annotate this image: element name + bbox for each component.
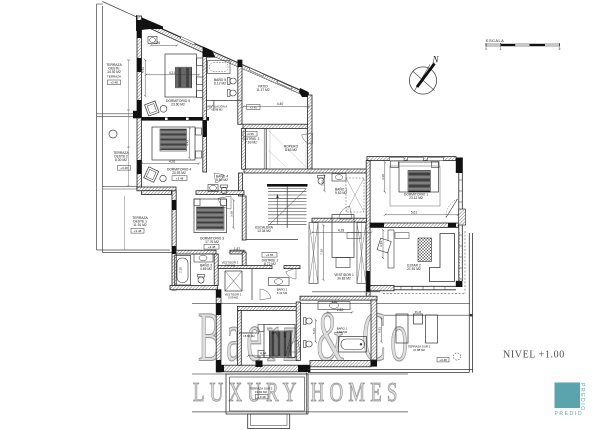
svg-text:6.12 M2: 6.12 M2	[214, 82, 226, 86]
svg-text:+3.48: +3.48	[110, 81, 118, 85]
svg-text:14.92 M2: 14.92 M2	[107, 70, 121, 74]
svg-text:+3.48: +3.48	[258, 395, 266, 399]
svg-text:+3.48: +3.48	[176, 176, 184, 180]
svg-text:ESCALA: ESCALA	[486, 38, 504, 43]
svg-text:1.87: 1.87	[234, 247, 240, 251]
svg-text:3.09 M2: 3.09 M2	[228, 296, 239, 300]
svg-text:23.12 M2: 23.12 M2	[409, 196, 423, 200]
svg-text:47.88 M2: 47.88 M2	[413, 348, 425, 352]
svg-text:5.06: 5.06	[312, 328, 316, 334]
svg-text:4.30: 4.30	[381, 174, 385, 180]
svg-text:7.34 M2: 7.34 M2	[225, 264, 236, 268]
svg-text:17.76 M2: 17.76 M2	[205, 240, 219, 244]
svg-text:2.02: 2.02	[332, 300, 338, 304]
svg-text:4.21: 4.21	[169, 71, 175, 75]
svg-text:4.43: 4.43	[186, 140, 190, 146]
svg-text:20.93 M2: 20.93 M2	[172, 171, 186, 175]
svg-text:21.91 M2: 21.91 M2	[407, 267, 421, 271]
svg-text:5.81: 5.81	[378, 327, 382, 333]
svg-text:4.28: 4.28	[338, 228, 344, 232]
svg-text:3.68: 3.68	[230, 211, 234, 217]
svg-text:7.52 M2: 7.52 M2	[337, 330, 348, 334]
svg-text:N: N	[432, 55, 440, 65]
svg-text:NIVEL +1.00: NIVEL +1.00	[503, 350, 565, 361]
svg-text:5.61: 5.61	[411, 210, 417, 214]
svg-text:4.24: 4.24	[260, 352, 266, 356]
svg-text:8.30 M2: 8.30 M2	[115, 158, 127, 162]
svg-text:PREDIO: PREDIO	[555, 411, 584, 417]
svg-text:65.45: 65.45	[415, 310, 422, 314]
svg-text:23.60 M2: 23.60 M2	[171, 102, 185, 106]
svg-text:13.34 M2: 13.34 M2	[257, 229, 271, 233]
svg-text:4.40: 4.40	[277, 102, 284, 106]
svg-text:4.69 M2: 4.69 M2	[200, 267, 212, 271]
svg-text:+3.48: +3.48	[134, 229, 142, 233]
svg-text:1.64: 1.64	[321, 180, 325, 186]
svg-text:+3.48: +3.48	[439, 358, 447, 362]
svg-text:5: 5	[559, 47, 561, 51]
svg-text:5.53: 5.53	[141, 67, 145, 73]
svg-text:8.72 M2: 8.72 M2	[264, 262, 276, 266]
svg-text:2.26: 2.26	[154, 41, 160, 45]
svg-text:2.20: 2.20	[179, 267, 183, 273]
svg-text:7.93 M2: 7.93 M2	[245, 141, 257, 145]
svg-text:7.29: 7.29	[320, 249, 324, 255]
svg-text:4.26: 4.26	[169, 159, 175, 163]
svg-text:2.82: 2.82	[337, 308, 343, 312]
svg-text:65.08 M2: 65.08 M2	[211, 107, 223, 111]
svg-text:5.41 M2: 5.41 M2	[277, 291, 288, 295]
svg-text:1: 1	[500, 47, 502, 51]
svg-text:PREDIO: PREDIO	[579, 383, 585, 412]
svg-text:5.80 M2: 5.80 M2	[216, 178, 228, 182]
svg-text:9.52 M2: 9.52 M2	[335, 191, 347, 195]
svg-text:0: 0	[485, 47, 487, 51]
svg-text:+3.48: +3.48	[120, 166, 128, 170]
svg-text:11.91 M2: 11.91 M2	[133, 223, 147, 227]
svg-text:30.83 M2: 30.83 M2	[337, 277, 351, 281]
svg-text:+3.55: +3.55	[246, 132, 254, 136]
svg-text:8.63 M2: 8.63 M2	[285, 148, 297, 152]
svg-text:+3.48: +3.48	[208, 245, 216, 249]
svg-text:+3.45: +3.45	[250, 105, 258, 109]
svg-text:+3.55: +3.55	[266, 253, 274, 257]
svg-text:11.17 M2: 11.17 M2	[256, 88, 270, 92]
svg-text:15.60 M2: 15.60 M2	[243, 334, 255, 338]
svg-text:3.93: 3.93	[379, 241, 383, 247]
svg-text:TERRAZA: TERRAZA	[107, 75, 121, 79]
svg-text:19.60 M2: 19.60 M2	[255, 390, 267, 394]
